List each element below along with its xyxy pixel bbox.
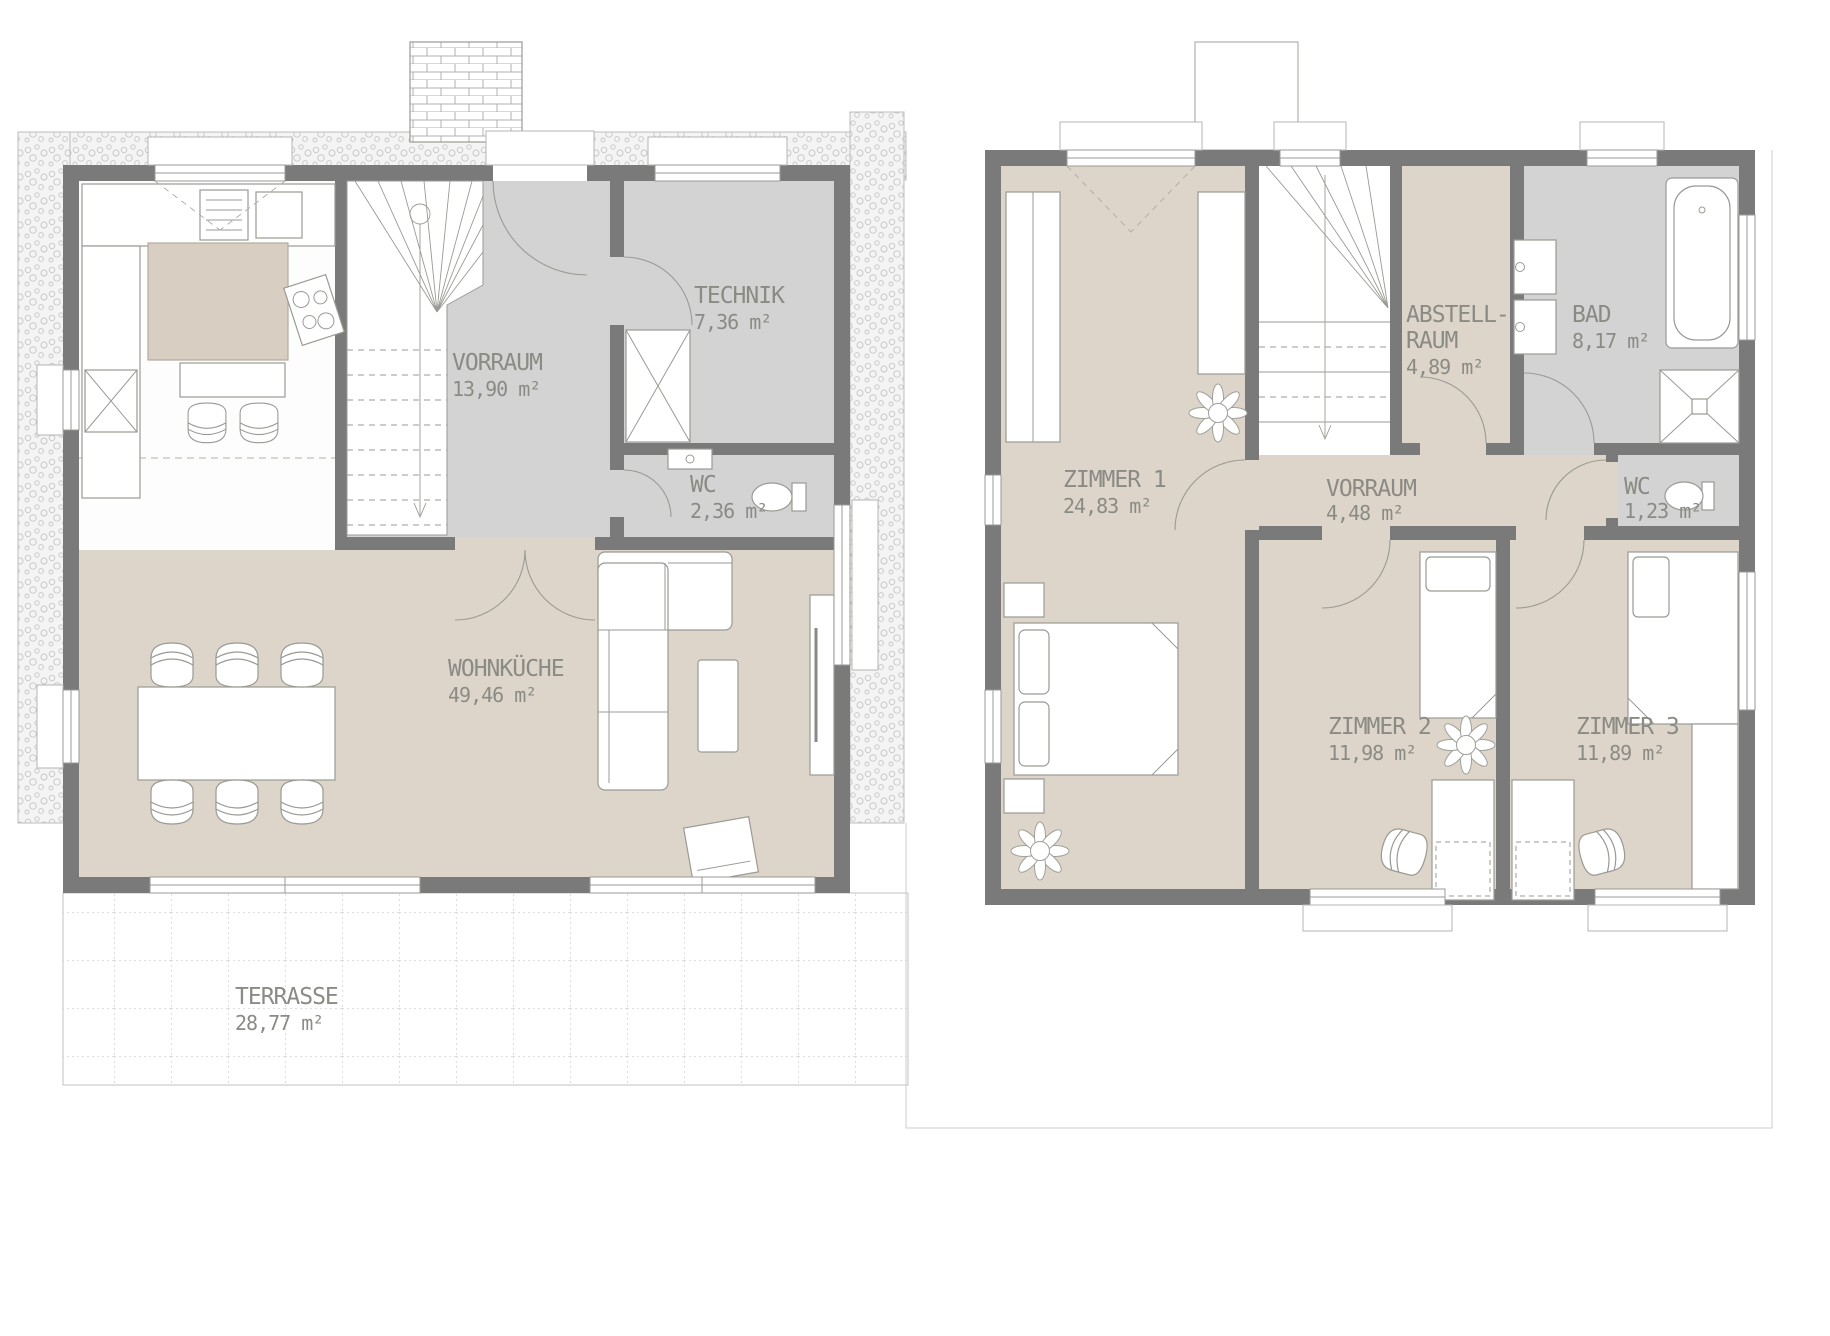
boiler	[626, 330, 690, 442]
plant-icon	[1011, 822, 1069, 880]
desk	[1432, 780, 1494, 900]
window	[1588, 889, 1727, 931]
wc-og-door-opening	[1606, 462, 1618, 518]
plant-icon	[1189, 384, 1247, 442]
window	[148, 137, 292, 181]
kitchen-island	[148, 243, 288, 360]
svg-text:ABSTELL-: ABSTELL-	[1406, 302, 1509, 328]
entry-door-opening	[493, 165, 587, 181]
svg-text:BAD: BAD	[1572, 302, 1611, 328]
wardrobe	[1198, 192, 1245, 374]
label-vorraum-og: VORRAUM 4,48 m²	[1326, 476, 1416, 525]
svg-text:VORRAUM: VORRAUM	[452, 350, 542, 376]
bathroom-sink	[1514, 300, 1556, 354]
svg-text:TECHNIK: TECHNIK	[694, 283, 785, 309]
dining-chair	[281, 780, 323, 824]
window	[1739, 215, 1755, 340]
stair-opening	[1259, 443, 1390, 455]
label-zimmer1: ZIMMER 1 24,83 m²	[1063, 467, 1166, 518]
single-bed	[1420, 552, 1496, 718]
dining-chair	[281, 643, 323, 687]
window	[834, 500, 878, 670]
gravel-strip-right	[850, 112, 904, 823]
wc-sink	[668, 449, 712, 469]
svg-text:ZIMMER 1: ZIMMER 1	[1063, 467, 1166, 493]
svg-text:TERRASSE: TERRASSE	[235, 984, 338, 1010]
upper-floor-plan: ZIMMER 1 24,83 m² ABSTELL- RAUM 4,89 m² …	[906, 42, 1772, 1128]
window	[1739, 572, 1755, 710]
dining-chair	[216, 643, 258, 687]
window	[1060, 122, 1202, 166]
desk	[1512, 780, 1574, 900]
wc-door-opening	[610, 470, 624, 517]
floor-plan-image: VORRAUM 13,90 m² TECHNIK 7,36 m² WC 2,36…	[0, 0, 1830, 1336]
svg-text:13,90 m²: 13,90 m²	[452, 377, 540, 401]
bar-table	[180, 363, 285, 397]
label-zimmer3: ZIMMER 3 11,89 m²	[1576, 714, 1679, 765]
svg-text:7,36 m²: 7,36 m²	[694, 310, 771, 334]
label-vorraum-eg: VORRAUM 13,90 m²	[452, 350, 542, 401]
terrace-sliding-door	[150, 877, 420, 893]
technik-door-opening	[610, 257, 624, 325]
abstellraum-door-opening	[1420, 443, 1486, 455]
svg-text:4,48 m²: 4,48 m²	[1326, 501, 1403, 525]
svg-text:WC: WC	[690, 472, 716, 498]
coffee-table	[698, 660, 738, 752]
zimmer1-door-opening	[1245, 460, 1259, 530]
label-terrasse: TERRASSE 28,77 m²	[235, 984, 338, 1035]
dining-chair	[151, 643, 193, 687]
svg-text:11,98 m²: 11,98 m²	[1328, 741, 1416, 765]
plant-icon	[1437, 716, 1495, 774]
bathroom-sink	[1514, 240, 1556, 294]
svg-text:2,36 m²: 2,36 m²	[690, 499, 767, 523]
lounge-mat	[684, 817, 759, 884]
dining-table	[138, 687, 335, 780]
svg-text:ZIMMER 2: ZIMMER 2	[1328, 714, 1431, 740]
svg-text:49,46 m²: 49,46 m²	[448, 683, 536, 707]
window	[1580, 122, 1664, 166]
bar-stool	[240, 403, 278, 443]
window	[1274, 122, 1346, 166]
wardrobe	[1006, 192, 1060, 442]
chimney-ground	[410, 42, 522, 142]
svg-text:4,89 m²: 4,89 m²	[1406, 355, 1483, 379]
zimmer3-door-opening	[1516, 526, 1584, 540]
svg-text:WC: WC	[1624, 474, 1650, 500]
bad-door-opening	[1524, 443, 1594, 455]
bathtub	[1666, 178, 1738, 348]
dining-chair	[216, 780, 258, 824]
single-bed	[1628, 552, 1738, 724]
svg-text:28,77 m²: 28,77 m²	[235, 1011, 323, 1035]
svg-text:WOHNKÜCHE: WOHNKÜCHE	[448, 654, 564, 682]
svg-text:8,17 m²: 8,17 m²	[1572, 329, 1649, 353]
svg-text:11,89 m²: 11,89 m²	[1576, 741, 1664, 765]
dining-chair	[151, 780, 193, 824]
kitchen-counter-left	[82, 246, 140, 498]
zimmer2-door-opening	[1322, 526, 1390, 540]
window	[985, 475, 1001, 525]
kitchen-counter-top	[82, 184, 335, 246]
window	[648, 137, 787, 181]
entry-porch	[486, 131, 594, 165]
wardrobe	[1692, 724, 1738, 889]
svg-text:ZIMMER 3: ZIMMER 3	[1576, 714, 1679, 740]
shower	[1660, 370, 1739, 443]
window	[985, 690, 1001, 763]
bar-stool	[188, 403, 226, 443]
double-door-opening	[455, 537, 595, 550]
label-zimmer2: ZIMMER 2 11,98 m²	[1328, 714, 1431, 765]
window	[37, 685, 79, 768]
svg-text:RAUM: RAUM	[1406, 328, 1458, 354]
svg-text:1,23 m²: 1,23 m²	[1624, 499, 1701, 523]
window	[1303, 889, 1452, 931]
window	[37, 365, 79, 435]
ground-floor-plan: VORRAUM 13,90 m² TECHNIK 7,36 m² WC 2,36…	[18, 42, 908, 1085]
terrace-sliding-door	[590, 877, 815, 893]
stairwell-upper	[1259, 166, 1390, 443]
svg-text:VORRAUM: VORRAUM	[1326, 476, 1416, 502]
terrasse	[63, 893, 908, 1085]
svg-text:24,83 m²: 24,83 m²	[1063, 494, 1151, 518]
floor-plan-canvas: VORRAUM 13,90 m² TECHNIK 7,36 m² WC 2,36…	[0, 0, 1830, 1336]
tv-board	[810, 595, 834, 775]
